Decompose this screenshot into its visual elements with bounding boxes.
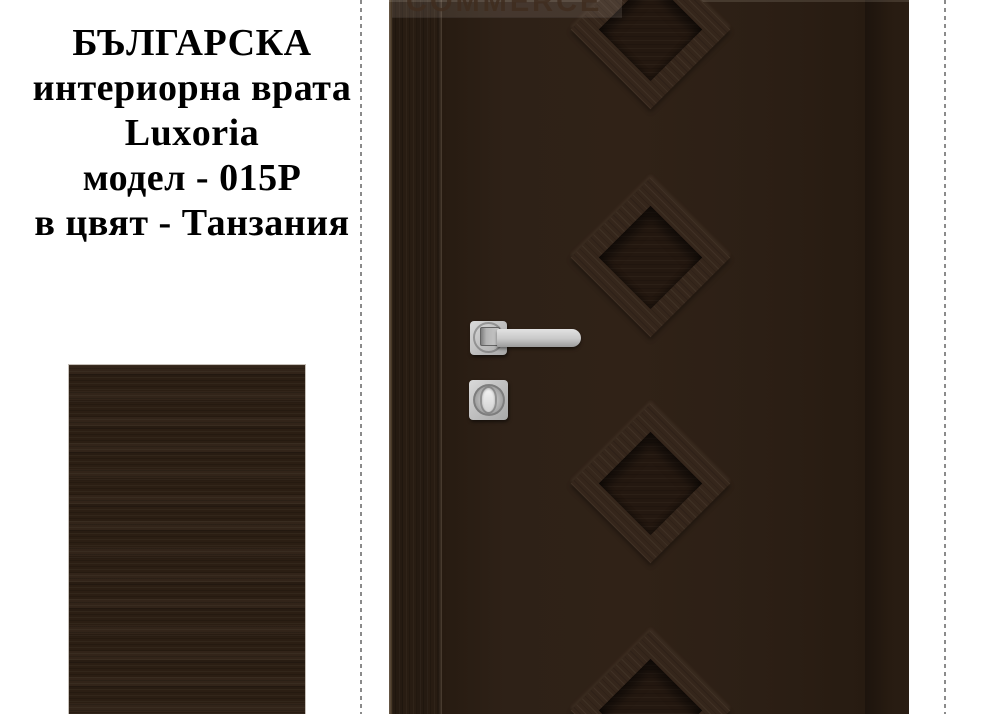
door-handle-lever: [497, 329, 581, 347]
door-face: [442, 0, 865, 714]
caption-block: БЪЛГАРСКА интериорна врата Luxoria модел…: [8, 21, 376, 246]
lock-thumbturn: [482, 388, 495, 412]
caption-line-model: модел - 015P: [8, 156, 376, 201]
product-image: БЪЛГАРСКА интериорна врата Luxoria модел…: [0, 0, 1000, 714]
lock-rosette: [469, 380, 508, 420]
watermark-band: COMMERCE: [392, 0, 622, 18]
caption-line-brand: Luxoria: [8, 111, 376, 156]
watermark-text: COMMERCE: [406, 0, 602, 18]
door-right-stile: [865, 0, 909, 714]
diamond-panel-3-recess: [599, 432, 702, 535]
crop-mark-left-line: [360, 0, 362, 714]
diamond-panel-4-recess: [599, 659, 702, 714]
caption-line-origin: БЪЛГАРСКА: [8, 21, 376, 66]
door-left-stile: [392, 0, 442, 714]
wood-color-swatch: [69, 365, 305, 714]
caption-line-color: в цвят - Танзания: [8, 201, 376, 246]
diamond-panel-2-recess: [599, 206, 702, 309]
door-photo: COMMERCE: [389, 0, 909, 714]
crop-mark-right-line: [944, 0, 946, 714]
caption-line-product: интериорна врата: [8, 66, 376, 111]
